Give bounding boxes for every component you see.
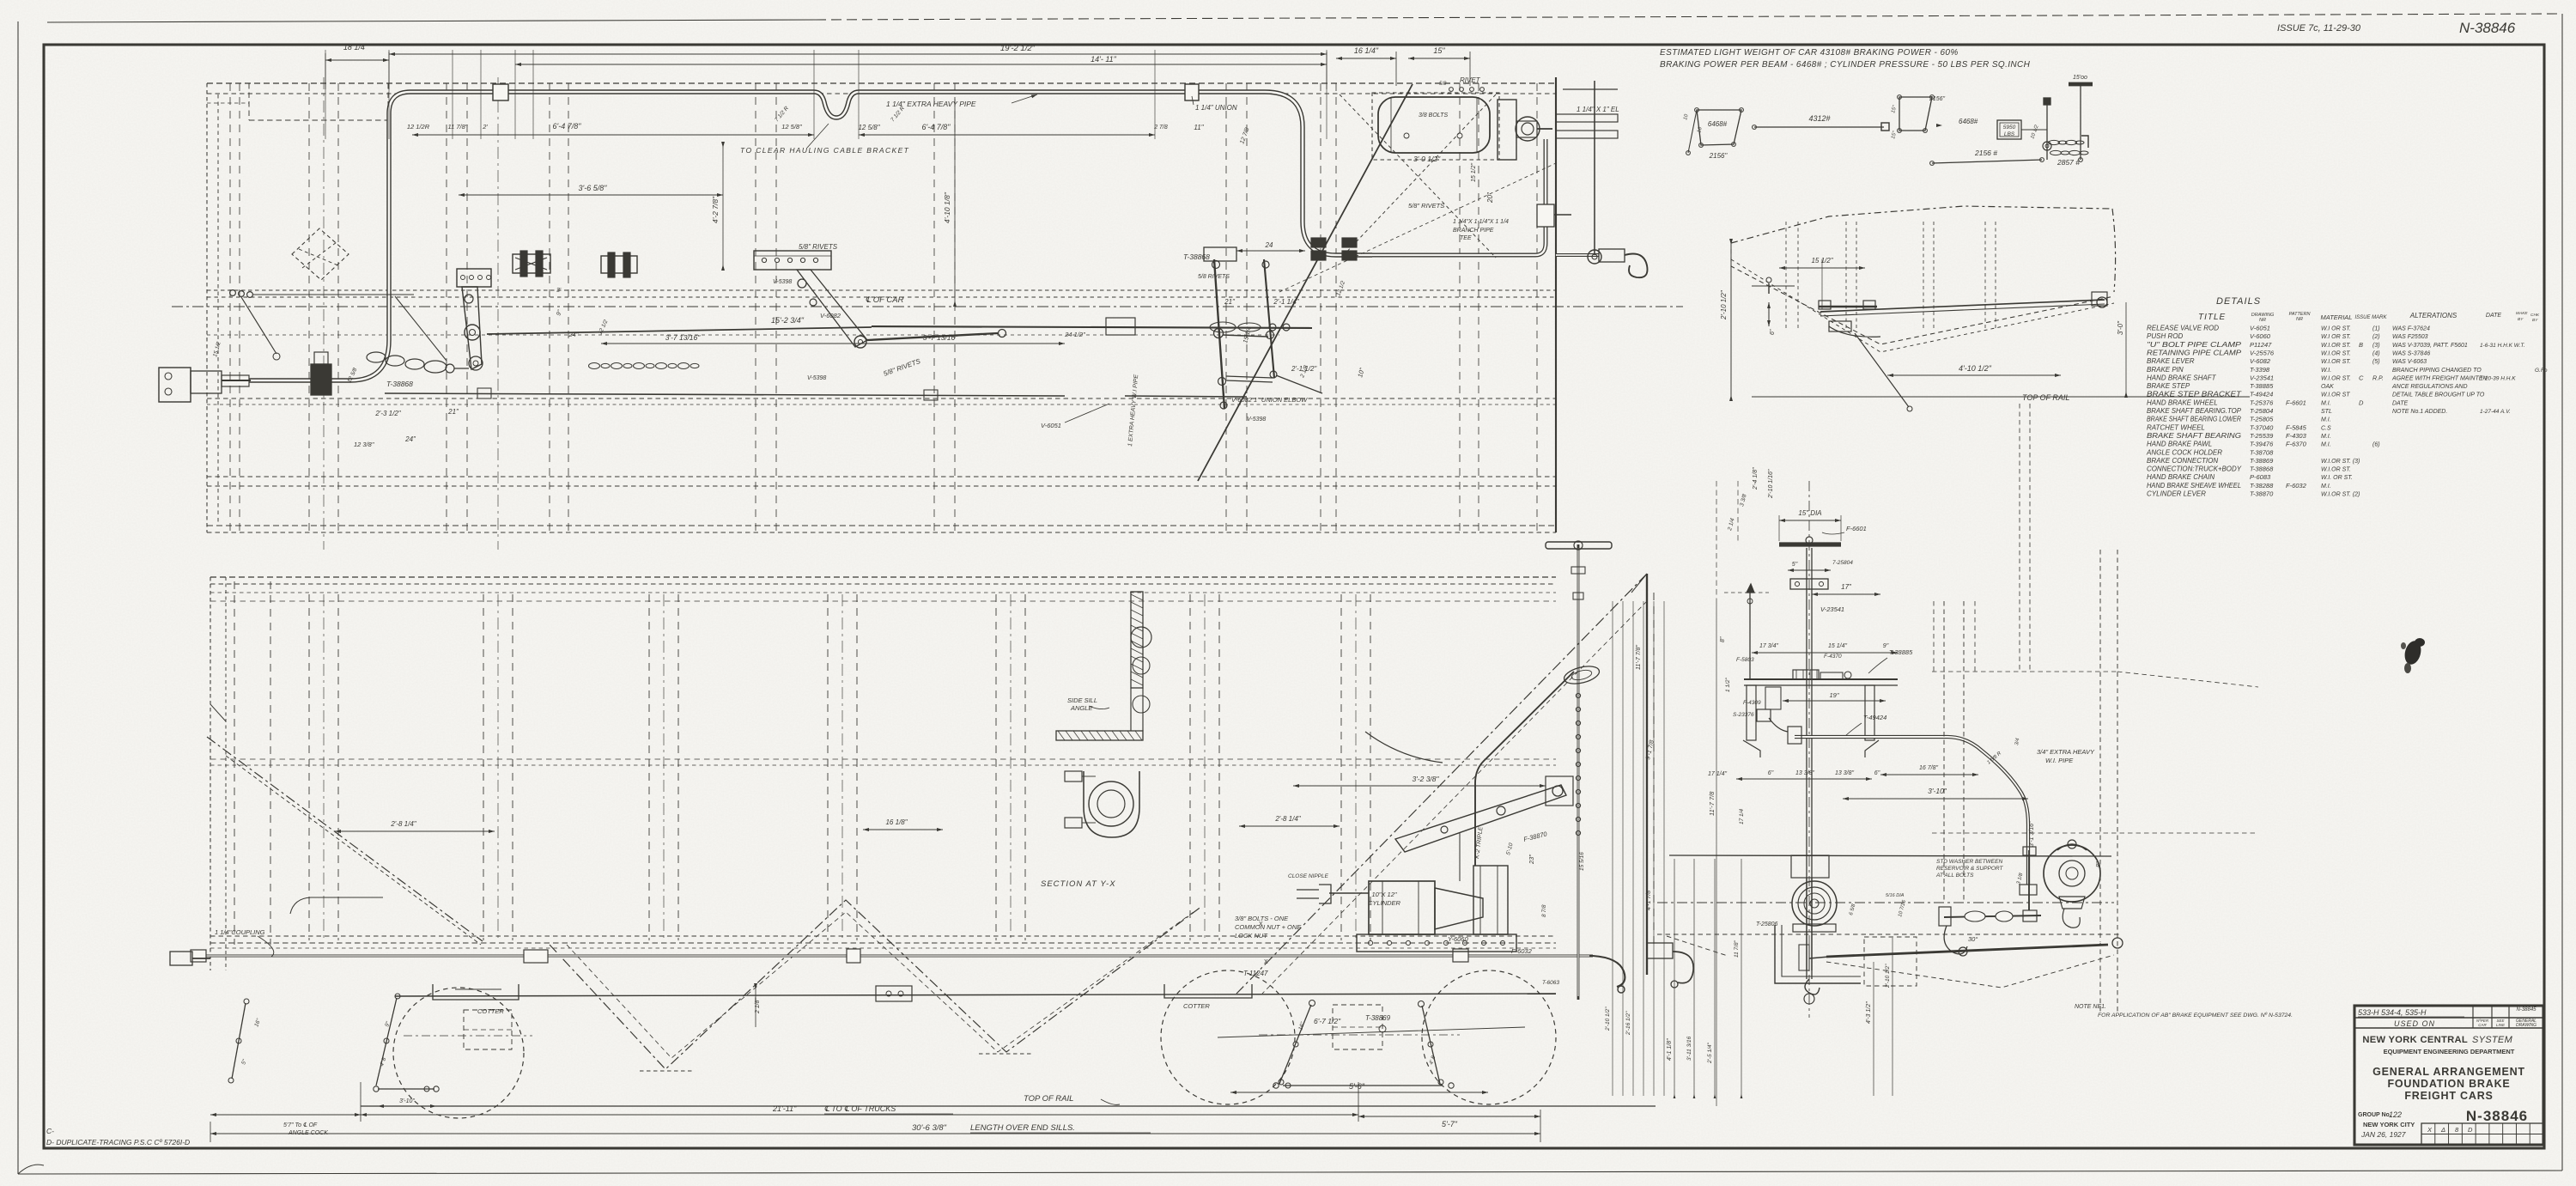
svg-text:AGREE WITH FREIGHT MAINTEN: AGREE WITH FREIGHT MAINTEN [2391, 375, 2488, 381]
svg-text:NOTE NE1.: NOTE NE1. [2075, 1004, 2106, 1010]
svg-text:C-: C- [46, 1127, 54, 1135]
svg-text:ISSUE MARK: ISSUE MARK [2354, 315, 2387, 320]
svg-text:F-4309: F-4309 [1743, 700, 1761, 706]
svg-text:T-25806: T-25806 [1756, 921, 1778, 928]
svg-text:14'- 11": 14'- 11" [1091, 55, 1117, 64]
svg-text:HAND BRAKE CHAIN: HAND BRAKE CHAIN [2147, 473, 2215, 481]
svg-text:3'-6 5/8": 3'-6 5/8" [579, 184, 608, 192]
svg-text:RETAINING PIPE CLAMP: RETAINING PIPE CLAMP [2147, 349, 2242, 356]
svg-text:17 1/4": 17 1/4" [1708, 771, 1727, 777]
svg-text:RESERVOIR & SUPPORT: RESERVOIR & SUPPORT [1936, 866, 2003, 872]
svg-text:WAS V-6063: WAS V-6063 [2392, 359, 2427, 365]
svg-text:ESTIMATED LIGHT WEIGHT OF CAR: ESTIMATED LIGHT WEIGHT OF CAR 43108# BRA… [1660, 48, 1959, 58]
svg-text:12 5/8": 12 5/8" [781, 123, 802, 131]
svg-text:P11247: P11247 [2250, 341, 2272, 349]
svg-text:Δ: Δ [2440, 1126, 2445, 1134]
svg-text:BRAKING POWER PER BEAM - 6468#: BRAKING POWER PER BEAM - 6468# ; CYLINDE… [1660, 60, 2031, 70]
svg-text:LOCK NUT: LOCK NUT [1235, 932, 1268, 940]
svg-text:ANGLE: ANGLE [1070, 704, 1093, 712]
svg-text:T-38870: T-38870 [2250, 490, 2274, 498]
svg-text:17 1/4: 17 1/4 [1739, 809, 1745, 824]
svg-text:(4): (4) [2372, 350, 2380, 356]
svg-text:2 7/8: 2 7/8 [1153, 125, 1168, 131]
svg-text:6468#: 6468# [1708, 120, 1728, 128]
svg-text:(6): (6) [2372, 442, 2380, 448]
svg-text:STL: STL [2321, 409, 2332, 415]
svg-text:6": 6" [1770, 329, 1776, 335]
svg-text:2'-1 1/4": 2'-1 1/4" [1273, 298, 1299, 306]
svg-text:WAS F-37624: WAS F-37624 [2392, 326, 2430, 332]
svg-text:F-6601: F-6601 [1846, 525, 1867, 532]
svg-text:BRAKE PIN: BRAKE PIN [2147, 366, 2184, 374]
svg-text:1 1/4"X 1 1/4"X 1 1/4: 1 1/4"X 1 1/4"X 1 1/4 [1453, 219, 1509, 225]
svg-text:18 1/4": 18 1/4" [343, 43, 368, 52]
svg-text:W.I OR ST.: W.I OR ST. [2321, 326, 2351, 332]
svg-text:W.I.OR ST.: W.I.OR ST. [2321, 350, 2351, 356]
svg-text:3'-2 3/8": 3'-2 3/8" [1412, 775, 1439, 783]
svg-text:13 3/8": 13 3/8" [1835, 770, 1854, 776]
svg-text:T-38868: T-38868 [2250, 465, 2274, 473]
svg-text:5/16 DIA: 5/16 DIA [1886, 893, 1905, 898]
svg-text:LINE: LINE [2496, 1023, 2506, 1027]
svg-text:DETAILS: DETAILS [2216, 296, 2261, 307]
svg-text:T-49424: T-49424 [2250, 391, 2273, 398]
svg-text:21": 21" [447, 408, 459, 416]
svg-text:V-25576: V-25576 [2250, 349, 2275, 356]
svg-text:(5): (5) [2372, 359, 2380, 365]
svg-text:19": 19" [1829, 691, 1838, 699]
svg-text:W.I OR ST.: W.I OR ST. [2321, 334, 2351, 340]
svg-text:W.I.OR ST.: W.I.OR ST. [2321, 375, 2351, 381]
svg-text:4'-3 1/2": 4'-3 1/2" [1866, 1001, 1872, 1024]
svg-text:5950: 5950 [2003, 125, 2016, 131]
svg-text:V-23541: V-23541 [1820, 605, 1844, 613]
svg-text:5/8" RIVETS: 5/8" RIVETS [799, 243, 838, 251]
svg-text:NR: NR [2259, 318, 2266, 323]
svg-text:19'-2 1/2": 19'-2 1/2" [1000, 44, 1036, 53]
svg-text:HAND BRAKE SHAFT: HAND BRAKE SHAFT [2147, 374, 2217, 381]
svg-text:3'-1 3/16": 3'-1 3/16" [2029, 821, 2035, 847]
svg-text:30°: 30° [1968, 935, 1978, 943]
svg-text:12 1/2R: 12 1/2R [407, 123, 430, 131]
svg-text:C.S: C.S [2321, 425, 2331, 431]
svg-text:V-23541: V-23541 [2250, 374, 2274, 381]
svg-text:15": 15" [1433, 46, 1445, 55]
svg-text:2'-10 1/2": 2'-10 1/2" [1720, 289, 1728, 320]
svg-text:SECTION AT Y-X: SECTION AT Y-X [1041, 879, 1116, 889]
svg-text:15 5/16: 15 5/16 [1579, 852, 1585, 871]
svg-text:W.I.OR ST.: W.I.OR ST. [2321, 467, 2351, 473]
svg-text:BRAKE STEP: BRAKE STEP [2147, 382, 2190, 390]
svg-text:ANCE REGULATIONS AND: ANCE REGULATIONS AND [2391, 384, 2468, 390]
svg-text:5'-7": 5'-7" [1442, 1120, 1458, 1128]
svg-text:℄ TO ℄ OF TRUCKS: ℄ TO ℄ OF TRUCKS [824, 1104, 896, 1113]
svg-text:6468#: 6468# [1959, 118, 1978, 125]
svg-text:2': 2' [482, 123, 488, 131]
svg-text:16 7/8": 16 7/8" [1919, 765, 1938, 771]
svg-text:3'-0 1/2": 3'-0 1/2" [1413, 155, 1441, 163]
svg-text:WAS V-37039, PATT. F5601: WAS V-37039, PATT. F5601 [2392, 343, 2468, 349]
svg-text:T-25376: T-25376 [2250, 398, 2274, 406]
svg-text:"U" BOLT PIPE CLAMP: "U" BOLT PIPE CLAMP [2147, 341, 2242, 349]
svg-text:V-5398: V-5398 [773, 279, 792, 285]
svg-text:USED ON: USED ON [2394, 1019, 2435, 1028]
svg-text:HAND BRAKE SHEAVE WHEEL: HAND BRAKE SHEAVE WHEEL [2147, 482, 2241, 490]
svg-text:CONNECTION:TRUCK+BODY: CONNECTION:TRUCK+BODY [2147, 465, 2242, 473]
svg-text:5": 5" [1792, 562, 1798, 568]
svg-text:T-6063: T-6063 [1542, 980, 1559, 986]
svg-text:T-25804: T-25804 [2250, 407, 2273, 415]
svg-text:3'-7 13/16": 3'-7 13/16" [665, 333, 702, 342]
svg-text:6'-4 7/8": 6'-4 7/8" [922, 123, 951, 131]
svg-text:F-6032: F-6032 [2286, 482, 2307, 490]
svg-text:1-6-31 H.H.K W.T.: 1-6-31 H.H.K W.T. [2480, 343, 2525, 349]
svg-text:V-6060: V-6060 [2250, 332, 2271, 340]
svg-text:1 1/4" X 1" EL: 1 1/4" X 1" EL [1577, 106, 1619, 113]
svg-text:S-23376: S-23376 [1733, 712, 1754, 718]
svg-text:TITLE: TITLE [2198, 313, 2226, 322]
svg-text:6": 6" [1768, 770, 1774, 776]
svg-text:24": 24" [568, 331, 578, 338]
svg-text:T-3398: T-3398 [2250, 366, 2270, 374]
svg-text:1-20-39 H.H.K: 1-20-39 H.H.K [2480, 375, 2516, 381]
svg-text:CHK: CHK [2530, 313, 2540, 318]
svg-text:BRANCH PIPE: BRANCH PIPE [1453, 228, 1494, 234]
svg-text:2'-10 1/2": 2'-10 1/2" [1885, 964, 1891, 988]
svg-text:TOP OF RAIL: TOP OF RAIL [2022, 393, 2069, 402]
svg-text:(1): (1) [2372, 326, 2380, 332]
svg-text:℄ OF CAR: ℄ OF CAR [866, 295, 904, 305]
svg-text:3'-7 13/16": 3'-7 13/16" [923, 333, 959, 342]
svg-text:2156": 2156" [1929, 96, 1946, 102]
svg-text:T-25539: T-25539 [2250, 432, 2274, 440]
svg-text:SIDE SILL: SIDE SILL [1067, 696, 1097, 704]
svg-text:FREIGHT CARS: FREIGHT CARS [2404, 1090, 2493, 1102]
svg-text:8 7/8: 8 7/8 [1541, 904, 1547, 917]
svg-text:8": 8" [1720, 636, 1726, 642]
svg-text:WAS F25503: WAS F25503 [2392, 334, 2428, 340]
svg-text:D: D [2468, 1126, 2473, 1134]
svg-text:1 1/2": 1 1/2" [1725, 678, 1731, 692]
svg-text:11'-7 7/8": 11'-7 7/8" [1636, 644, 1642, 670]
svg-text:V-6082: V-6082 [2250, 357, 2271, 365]
svg-text:W.I.OR ST.: W.I.OR ST. [2321, 343, 2351, 349]
svg-text:TO CLEAR HAULING CABLE BRACKET: TO CLEAR HAULING CABLE BRACKET [740, 146, 909, 155]
svg-text:V-6082: V-6082 [820, 312, 841, 319]
svg-text:8": 8" [2096, 861, 2102, 867]
svg-text:122: 122 [2389, 1110, 2402, 1119]
svg-text:DRAWING: DRAWING [2516, 1023, 2537, 1028]
svg-text:D: D [2359, 398, 2364, 406]
svg-text:CYLINDER LEVER: CYLINDER LEVER [2147, 490, 2206, 498]
svg-text:V-6051: V-6051 [1041, 422, 1061, 429]
svg-text:16 1/4": 16 1/4" [1354, 46, 1379, 55]
svg-text:T-38868: T-38868 [386, 380, 413, 388]
svg-text:NEW YORK CITY: NEW YORK CITY [2363, 1121, 2415, 1128]
svg-text:2857 #: 2857 # [2057, 158, 2080, 167]
svg-text:F-6032: F-6032 [1511, 947, 1533, 955]
svg-text:F-6601: F-6601 [2286, 398, 2306, 406]
svg-text:N-38845: N-38845 [2516, 1007, 2537, 1013]
svg-text:9": 9" [1883, 643, 1889, 649]
svg-text:BRAKE LEVER: BRAKE LEVER [2147, 357, 2195, 365]
svg-text:W.I.OR ST. (3): W.I.OR ST. (3) [2321, 459, 2360, 465]
svg-text:3': 3' [556, 288, 562, 294]
svg-text:P-6083: P-6083 [2250, 473, 2271, 481]
svg-text:2'-4 1/8": 2'-4 1/8" [1753, 467, 1759, 490]
svg-text:F-6370: F-6370 [2286, 441, 2307, 448]
svg-text:1 1/4"COUPLING: 1 1/4"COUPLING [215, 928, 265, 936]
svg-text:GENERAL ARRANGEMENT: GENERAL ARRANGEMENT [2372, 1066, 2525, 1078]
svg-text:FOR APPLICATION OF AB" BRAKE E: FOR APPLICATION OF AB" BRAKE EQUIPMENT S… [2098, 1013, 2293, 1019]
svg-text:F-4303: F-4303 [2286, 432, 2307, 440]
svg-text:4'-1 7/8": 4'-1 7/8" [1646, 888, 1652, 910]
svg-text:CLOSE NIPPLE: CLOSE NIPPLE [1288, 873, 1329, 879]
svg-text:ISSUE 7c, 11-29-30: ISSUE 7c, 11-29-30 [2277, 23, 2361, 33]
svg-text:12 5/8": 12 5/8" [858, 124, 880, 131]
svg-text:15 1/2": 15 1/2" [1471, 163, 1477, 182]
svg-text:4'-10 1/2": 4'-10 1/2" [1959, 364, 1992, 373]
svg-text:(3): (3) [2372, 343, 2380, 349]
svg-text:T-38708: T-38708 [2250, 448, 2274, 456]
svg-text:17 3/4": 17 3/4" [1759, 643, 1778, 649]
svg-text:T-49424: T-49424 [1863, 714, 1886, 721]
svg-text:V-6051: V-6051 [2250, 325, 2270, 332]
svg-text:FOUNDATION BRAKE: FOUNDATION BRAKE [2387, 1078, 2510, 1090]
svg-text:BY: BY [2518, 317, 2524, 322]
svg-text:COMMON NUT + ONE: COMMON NUT + ONE [1235, 923, 1302, 931]
svg-text:15" DIA: 15" DIA [1798, 509, 1821, 517]
svg-text:2'-10 1/16": 2'-10 1/16" [1768, 469, 1774, 499]
svg-text:5'-6": 5'-6" [1349, 1082, 1365, 1091]
svg-text:SYSTEM: SYSTEM [2472, 1035, 2513, 1045]
svg-text:21": 21" [1224, 298, 1236, 306]
svg-text:3'-11 3/16: 3'-11 3/16 [1686, 1036, 1692, 1061]
svg-text:CYLINDER: CYLINDER [1368, 899, 1401, 907]
svg-text:4'-10 1/8": 4'-10 1/8" [943, 192, 951, 223]
svg-text:6": 6" [1874, 770, 1880, 776]
svg-text:R.P.: R.P. [2372, 375, 2384, 381]
svg-text:17": 17" [1841, 583, 1852, 591]
svg-text:2'-5 1/4": 2'-5 1/4" [1707, 1043, 1713, 1064]
svg-text:T-38288: T-38288 [2250, 482, 2274, 490]
svg-text:BRAKE SHAFT BEARING: BRAKE SHAFT BEARING [2147, 432, 2241, 440]
svg-text:BRAKE SHAFT BEARING.TOP: BRAKE SHAFT BEARING.TOP [2147, 407, 2242, 415]
svg-text:TEE: TEE [1460, 235, 1472, 241]
svg-text:M.I.: M.I. [2321, 484, 2331, 490]
svg-text:BY: BY [2532, 318, 2538, 323]
svg-text:3'-0": 3'-0" [2117, 320, 2124, 335]
svg-text:(2): (2) [2372, 334, 2380, 340]
svg-text:EQUIPMENT ENGINEERING DEPARTME: EQUIPMENT ENGINEERING DEPARTMENT [2384, 1048, 2515, 1055]
svg-text:X: X [1264, 959, 1268, 965]
svg-text:2156": 2156" [1709, 152, 1728, 160]
svg-text:11": 11" [1194, 124, 1204, 131]
svg-text:1-27-44 A.V.: 1-27-44 A.V. [2480, 409, 2511, 415]
svg-text:4'-1 1/8": 4'-1 1/8" [1667, 1038, 1673, 1061]
svg-text:DATE: DATE [2392, 400, 2408, 406]
svg-text:W.I.OR ST. (2): W.I.OR ST. (2) [2321, 492, 2360, 498]
svg-text:V-6082 1" UNION ELBOW: V-6082 1" UNION ELBOW [1231, 396, 1308, 404]
svg-text:5'7" To ℄ OF: 5'7" To ℄ OF [283, 1122, 318, 1128]
svg-text:V-5398: V-5398 [1247, 417, 1266, 423]
svg-text:HAND BRAKE PAWL: HAND BRAKE PAWL [2147, 441, 2212, 448]
svg-text:2'-8 1/4": 2'-8 1/4" [1274, 815, 1301, 823]
svg-text:5/8 RIVETS: 5/8 RIVETS [1198, 274, 1230, 280]
svg-text:JAN 26, 1927: JAN 26, 1927 [2360, 1130, 2406, 1139]
svg-text:BRAKE SHAFT BEARING LOWER: BRAKE SHAFT BEARING LOWER [2147, 416, 2241, 423]
svg-text:DATE: DATE [2486, 313, 2501, 319]
svg-text:NEW YORK CENTRAL: NEW YORK CENTRAL [2362, 1035, 2468, 1045]
svg-text:4'-2 7/8": 4'-2 7/8" [711, 196, 720, 223]
svg-text:15 1/2": 15 1/2" [1811, 257, 1833, 265]
svg-text:N-38846: N-38846 [2459, 20, 2516, 36]
svg-text:OAK: OAK [2321, 384, 2334, 390]
svg-text:24": 24" [404, 435, 416, 443]
svg-text:2'-10 1/2": 2'-10 1/2" [1605, 1007, 1611, 1031]
svg-text:T-38869: T-38869 [2250, 457, 2274, 465]
svg-text:24: 24 [1265, 241, 1273, 249]
svg-text:23": 23" [1528, 855, 1535, 865]
svg-text:B: B [2359, 341, 2363, 349]
svg-text:2'-8 1/4": 2'-8 1/4" [390, 820, 416, 828]
svg-text:LBS: LBS [2004, 131, 2015, 137]
svg-text:1 1/4" EXTRA HEAVY PIPE: 1 1/4" EXTRA HEAVY PIPE [886, 100, 976, 108]
svg-text:C: C [2359, 374, 2364, 381]
svg-text:PUSH ROD: PUSH ROD [2147, 332, 2183, 340]
svg-text:M.I.: M.I. [2321, 400, 2331, 406]
svg-text:TOP OF RAIL: TOP OF RAIL [1024, 1094, 1073, 1104]
svg-text:21'-11": 21'-11" [772, 1104, 797, 1113]
svg-text:N-38846: N-38846 [2466, 1108, 2528, 1124]
svg-text:CAR: CAR [2478, 1023, 2487, 1027]
svg-text:30'-6 3/8": 30'-6 3/8" [912, 1123, 947, 1133]
svg-text:3/4" EXTRA HEAVY: 3/4" EXTRA HEAVY [2037, 748, 2095, 756]
svg-text:COTTER: COTTER [1183, 1002, 1210, 1010]
svg-text:5/8: 5/8 [1439, 82, 1447, 87]
svg-text:DETAIL TABLE BROUGHT UP TO: DETAIL TABLE BROUGHT UP TO [2392, 392, 2485, 398]
svg-text:G.Fo: G.Fo [2535, 368, 2548, 374]
svg-text:11 7/8": 11 7/8" [448, 123, 468, 131]
svg-text:T-37040: T-37040 [2250, 423, 2274, 431]
svg-text:T-11247: T-11247 [1243, 970, 1268, 977]
svg-text:13 3/8": 13 3/8" [1795, 770, 1814, 776]
svg-text:MAKE: MAKE [2516, 311, 2528, 316]
svg-text:3'-10": 3'-10" [399, 1098, 415, 1104]
svg-text:20": 20" [1486, 192, 1494, 204]
svg-text:X: X [2427, 1126, 2433, 1134]
svg-text:LENGTH OVER END SILLS.: LENGTH OVER END SILLS. [970, 1123, 1075, 1133]
svg-text:M.I.: M.I. [2321, 442, 2331, 448]
svg-text:W.I.OR ST.: W.I.OR ST. [2321, 359, 2351, 365]
svg-text:M.I.: M.I. [2321, 434, 2331, 440]
svg-text:F-5803: F-5803 [1736, 657, 1754, 663]
svg-text:F-5845: F-5845 [2286, 423, 2307, 431]
svg-text:WAS S-37846: WAS S-37846 [2392, 350, 2430, 356]
svg-text:M.I.: M.I. [2321, 417, 2331, 423]
svg-text:W.I. PIPE: W.I. PIPE [2045, 757, 2074, 764]
svg-text:3/8 BOLTS: 3/8 BOLTS [1419, 113, 1448, 119]
svg-text:T-38868: T-38868 [1183, 252, 1210, 261]
svg-text:1 1/4" UNION: 1 1/4" UNION [1195, 104, 1237, 112]
svg-text:2'-3 1/2": 2'-3 1/2" [374, 410, 401, 417]
svg-text:24 1/2": 24 1/2" [1064, 331, 1085, 338]
svg-text:X: X [1259, 921, 1263, 928]
svg-text:2156 #: 2156 # [1974, 149, 1997, 157]
svg-text:15'-2 3/4": 15'-2 3/4" [771, 316, 805, 325]
svg-text:T-38885: T-38885 [2250, 382, 2274, 390]
svg-text:V-5398: V-5398 [807, 375, 826, 381]
svg-text:HAND BRAKE WHEEL: HAND BRAKE WHEEL [2147, 398, 2218, 406]
svg-text:GROUP No.: GROUP No. [2358, 1112, 2391, 1118]
svg-text:D- DUPLICATE-TRACING P.S.C Cº: D- DUPLICATE-TRACING P.S.C Cº 5726I-D [46, 1138, 190, 1146]
svg-text:RATCHET WHEEL: RATCHET WHEEL [2147, 423, 2205, 431]
svg-text:12 3/8": 12 3/8" [354, 441, 374, 448]
svg-text:NR: NR [2296, 317, 2303, 322]
svg-text:RELEASE VALVE ROD: RELEASE VALVE ROD [2147, 325, 2219, 332]
svg-text:11'-7 7/8: 11'-7 7/8 [1708, 791, 1716, 816]
svg-text:STD WASHER BETWEEN: STD WASHER BETWEEN [1936, 859, 2002, 865]
svg-text:W.I.OR ST: W.I.OR ST [2321, 392, 2350, 398]
svg-text:533-H 534-4, 535-H: 533-H 534-4, 535-H [2358, 1008, 2427, 1017]
svg-text:15'oo: 15'oo [2073, 75, 2087, 81]
svg-text:2'-16 1/2": 2'-16 1/2" [1625, 1011, 1631, 1036]
svg-text:W.I. OR ST.: W.I. OR ST. [2321, 475, 2353, 481]
svg-text:6'-4 7/8": 6'-4 7/8" [553, 122, 582, 131]
svg-text:T-25805: T-25805 [2250, 416, 2274, 423]
svg-text:NOTE No.1 ADDED.: NOTE No.1 ADDED. [2392, 409, 2447, 415]
svg-text:T-39476: T-39476 [2250, 441, 2274, 448]
svg-text:5/8" RIVETS: 5/8" RIVETS [1408, 202, 1444, 210]
svg-text:F-4370: F-4370 [1824, 654, 1842, 660]
svg-text:6'-7 1/2": 6'-7 1/2" [1314, 1017, 1341, 1025]
svg-text:16 1/8": 16 1/8" [885, 818, 908, 826]
svg-text:11 7/8": 11 7/8" [1734, 940, 1740, 958]
svg-text:ANGLE COCK HOLDER: ANGLE COCK HOLDER [2146, 448, 2222, 456]
svg-text:15 1/4": 15 1/4" [1828, 643, 1847, 649]
svg-text:W.I.: W.I. [2321, 368, 2331, 374]
svg-text:ALTERATIONS: ALTERATIONS [2409, 312, 2458, 319]
svg-text:4312#: 4312# [1808, 114, 1831, 123]
svg-text:T-38869: T-38869 [1365, 1014, 1391, 1022]
svg-text:BRAKE CONNECTION: BRAKE CONNECTION [2147, 457, 2218, 465]
svg-text:MATERIAL: MATERIAL [2321, 313, 2353, 321]
svg-text:10"X 12": 10"X 12" [1371, 891, 1396, 898]
svg-text:BRAKE STEP BRACKET: BRAKE STEP BRACKET [2147, 391, 2242, 398]
svg-text:Y-6060: Y-6060 [1448, 935, 1468, 943]
svg-text:COTTER: COTTER [477, 1007, 504, 1015]
svg-text:7-25804: 7-25804 [1832, 560, 1853, 566]
svg-text:AT ALL BOLTS: AT ALL BOLTS [1935, 873, 1974, 879]
svg-text:BRANCH PIPING CHANGED TO: BRANCH PIPING CHANGED TO [2392, 368, 2482, 374]
